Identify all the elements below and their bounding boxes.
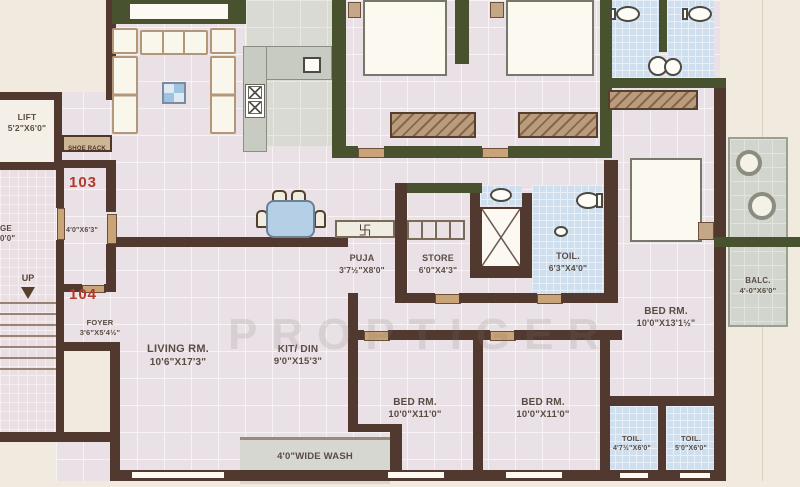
window xyxy=(130,4,228,19)
sofa-top xyxy=(140,30,208,55)
room-name: BED RM. xyxy=(370,396,460,409)
window xyxy=(620,473,648,478)
shoe-rack: SHOE RACK xyxy=(62,135,112,152)
wall xyxy=(0,92,62,100)
door-toilet-mid xyxy=(537,294,563,304)
sofa-corner-left xyxy=(112,28,138,54)
room-dims: 10'6"X17'3" xyxy=(128,356,228,369)
burner-icon xyxy=(248,86,262,99)
wall xyxy=(54,92,62,170)
room-dims: 6'3"X4'0" xyxy=(536,263,600,274)
bed-right-label: BED RM. 10'0"X11'0" xyxy=(498,396,588,421)
wall-unit-divider xyxy=(116,237,348,247)
room-dims: 10'0"X11'0" xyxy=(498,409,588,421)
washbasin-icon xyxy=(554,226,568,237)
void-right-bottom xyxy=(726,327,800,481)
wall xyxy=(407,183,482,193)
sofa-left xyxy=(112,56,138,134)
wall xyxy=(110,342,120,481)
toilet-b2-label: TOIL. 5'0"X6'0" xyxy=(664,434,718,453)
wall xyxy=(604,160,618,303)
void-top-left xyxy=(0,0,106,92)
shoe-rack-label: SHOE RACK xyxy=(68,146,106,152)
nightstand xyxy=(490,2,504,18)
wc-icon xyxy=(616,6,640,22)
common-passage-floor xyxy=(0,168,56,432)
window xyxy=(388,472,444,478)
staircase xyxy=(0,302,56,372)
wall-right-outer xyxy=(714,78,726,481)
stair-up-indicator: UP xyxy=(10,268,46,299)
wall xyxy=(600,396,726,406)
stove xyxy=(245,84,265,118)
puja-label: PUJA 3'7½"X8'0" xyxy=(328,253,396,276)
bed-master xyxy=(630,158,702,242)
passage-cut-label: GE 0'0" xyxy=(0,224,34,245)
dining-chair xyxy=(314,210,326,228)
wall xyxy=(56,302,64,440)
room-dims: 0'0" xyxy=(0,234,34,244)
wardrobe-topB xyxy=(518,112,598,138)
duct-shaft xyxy=(480,207,522,268)
wall xyxy=(459,293,537,303)
wall xyxy=(600,340,610,481)
bed-left-label: BED RM. 10'0"X11'0" xyxy=(370,396,460,421)
door-passage xyxy=(57,208,65,240)
room-name: TOIL. xyxy=(604,434,660,444)
floor-plan: 卐 SHOE RACK UP 103 104 LIFT 5'2"X6'0" GE… xyxy=(0,0,800,487)
window xyxy=(132,472,224,478)
room-name: BED RM. xyxy=(498,396,588,409)
room-name: FOYER xyxy=(68,318,132,328)
room-name: TOIL. xyxy=(536,251,600,263)
room-dims: 4'0"X6'3" xyxy=(56,226,108,235)
dining-table xyxy=(266,200,315,238)
wall xyxy=(561,293,618,303)
room-name: STORE xyxy=(406,253,470,265)
swastika-symbol: 卐 xyxy=(358,223,371,238)
side-table xyxy=(698,222,714,240)
kitchen-sink xyxy=(303,57,321,73)
balcony-label: BALC. 4'-0"X6'0" xyxy=(728,276,788,296)
watermark: PROPTIGER xyxy=(228,310,613,360)
room-name: BALC. xyxy=(728,276,788,286)
balcony-chair-icon xyxy=(736,150,762,176)
balcony-chair-icon xyxy=(748,192,776,220)
room-name: TOIL. xyxy=(664,434,718,444)
foyer-label: FOYER 3'6"X5'4½" xyxy=(68,318,132,338)
window xyxy=(506,472,562,478)
wardrobe-topA xyxy=(390,112,476,138)
store-shelf xyxy=(407,220,465,240)
wall xyxy=(470,268,532,278)
room-dims: 5'0"X6'0" xyxy=(664,444,718,453)
nightstand xyxy=(348,2,361,18)
wall xyxy=(470,193,480,277)
door-store xyxy=(435,294,461,304)
unit-number-104: 104 xyxy=(58,286,108,303)
entry-dims-label: 4'0"X6'3" xyxy=(56,226,108,235)
puja-platform: 卐 xyxy=(335,220,395,238)
wall xyxy=(522,193,532,277)
room-dims: 10'0"X13'1½" xyxy=(618,318,714,330)
room-dims: 4'7½"X6'0" xyxy=(604,444,660,453)
wall xyxy=(332,146,358,158)
wc-tank xyxy=(610,8,616,20)
burner-icon xyxy=(248,101,262,114)
room-dims: 3'7½"X8'0" xyxy=(328,265,396,276)
living-label: LIVING RM. 10'6"X17'3" xyxy=(128,342,228,369)
wall xyxy=(395,183,407,303)
up-arrow-icon xyxy=(21,287,35,299)
door-bed-topB xyxy=(482,148,510,158)
store-label: STORE 6'0"X4'3" xyxy=(406,253,470,276)
room-name: 4'0"WIDE WASH xyxy=(240,451,390,463)
window xyxy=(680,473,710,478)
room-dims: 4'-0"X6'0" xyxy=(728,286,788,296)
wall xyxy=(455,0,469,64)
void-foyer xyxy=(64,351,110,432)
unit-number-103: 103 xyxy=(58,174,108,191)
door-bed-topA xyxy=(358,148,386,158)
center-table xyxy=(162,82,186,104)
wc-tank xyxy=(596,193,603,208)
duct-cross-icon xyxy=(482,209,520,266)
up-label: UP xyxy=(22,273,35,283)
lift-label: LIFT 5'2"X6'0" xyxy=(0,112,54,134)
wall xyxy=(473,340,483,481)
wall xyxy=(384,146,482,158)
wc-icon xyxy=(688,6,712,22)
bed-topA xyxy=(363,0,447,76)
wall-balcony xyxy=(714,237,800,247)
room-dims: 5'2"X6'0" xyxy=(0,123,54,134)
sofa-right xyxy=(210,56,236,134)
room-name: LIVING RM. xyxy=(128,342,228,356)
room-dims: 3'6"X5'4½" xyxy=(68,328,132,338)
wall xyxy=(0,162,62,170)
room-name: GE xyxy=(0,224,34,234)
sofa-corner-right xyxy=(210,28,236,54)
basin-niche-icon xyxy=(490,188,512,202)
bed-master-label: BED RM. 10'0"X13'1½" xyxy=(618,305,714,330)
wc-tank xyxy=(682,8,688,20)
room-name: LIFT xyxy=(0,112,54,123)
room-name: BED RM. xyxy=(618,305,714,318)
void-right-top xyxy=(726,0,800,137)
washbasin-icon xyxy=(664,58,682,76)
toilet-b1-label: TOIL. 4'7½"X6'0" xyxy=(604,434,660,453)
wall xyxy=(332,0,346,158)
wall xyxy=(606,78,726,88)
room-dims: 6'0"X4'3" xyxy=(406,265,470,276)
wall xyxy=(659,0,667,52)
wardrobe-master xyxy=(608,90,698,110)
wash-label: 4'0"WIDE WASH xyxy=(240,451,390,463)
wall xyxy=(508,146,612,158)
wall xyxy=(395,293,435,303)
toilet-mid-label: TOIL. 6'3"X4'0" xyxy=(536,251,600,274)
wall xyxy=(56,342,116,351)
bed-topB xyxy=(506,0,594,76)
room-name: PUJA xyxy=(328,253,396,265)
wall xyxy=(0,432,120,442)
room-dims: 10'0"X11'0" xyxy=(370,409,460,421)
